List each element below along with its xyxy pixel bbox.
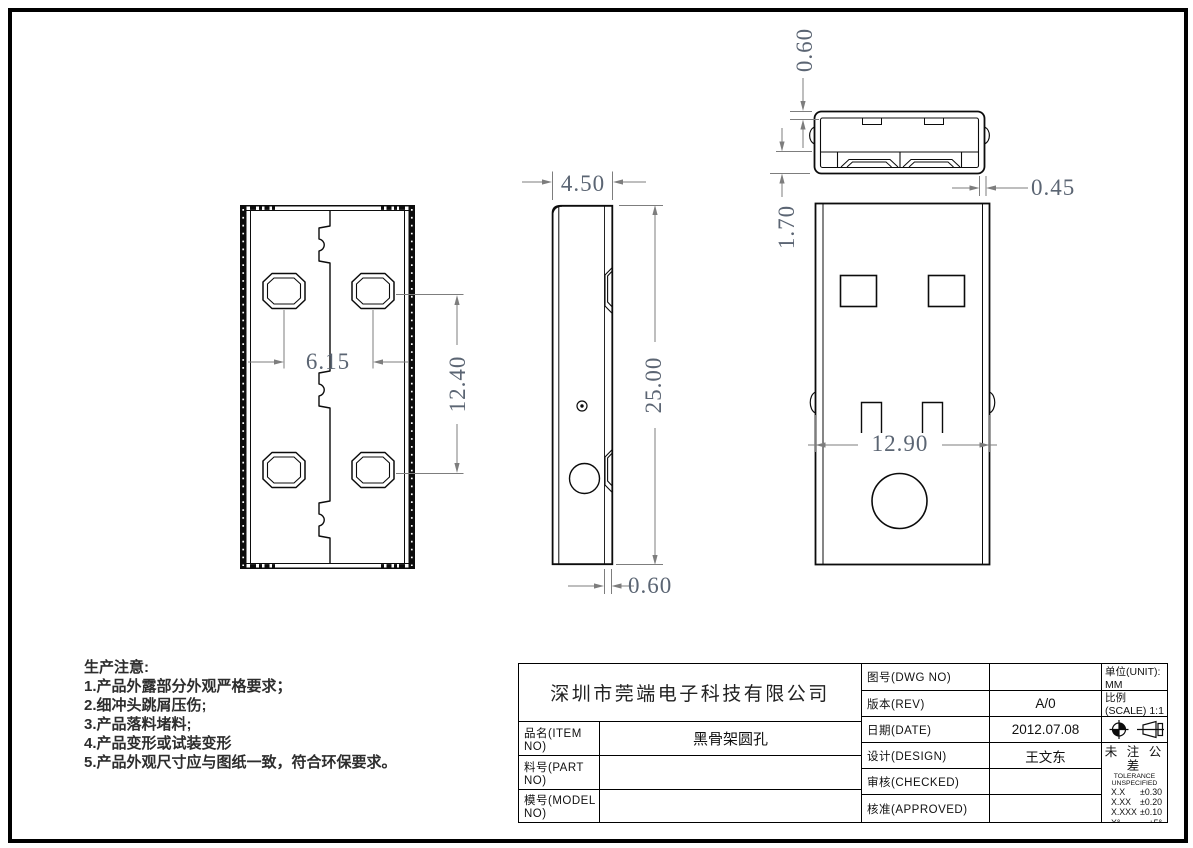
dwg-no-value — [989, 664, 1101, 690]
side-hole — [570, 464, 600, 494]
notes-title: 生产注意: — [84, 658, 397, 677]
item-no-value: 黑骨架圆孔 — [599, 721, 861, 755]
bottom-view — [240, 205, 415, 569]
hole-top-left — [263, 274, 305, 309]
corner-knurl-marks — [250, 206, 405, 567]
front-outline — [816, 204, 990, 565]
latch-tab-upper — [605, 268, 612, 313]
scale-label: 比例(SCALE) 1:1 — [1101, 690, 1167, 716]
note-line: 1.产品外露部分外观严格要求； — [84, 677, 397, 696]
dim-text-bottom-wall: 0.60 — [628, 574, 672, 598]
dimple-center — [580, 404, 583, 407]
part-no-value — [599, 755, 861, 789]
note-line: 4.产品变形或试装变形 — [84, 734, 397, 753]
tolerance-row: X.XXX±0.10 — [1102, 807, 1167, 817]
tolerance-row: X.XX±0.20 — [1102, 797, 1167, 807]
dim-side-wall — [952, 176, 1028, 196]
part-no-label: 料号(PART NO) — [519, 755, 599, 789]
item-no-label: 品名(ITEM NO) — [519, 721, 599, 755]
hole-bottom-right — [352, 453, 394, 488]
seam-line — [319, 210, 330, 564]
tolerance-box: 未 注 公 差 TOLERANCE UNSPECIFIED X.X±0.30 X… — [1101, 742, 1167, 822]
dimension-lines — [248, 78, 1028, 594]
end-notch-left — [863, 118, 882, 125]
tolerance-row: X.X±0.30 — [1102, 787, 1167, 797]
projection-symbols-cell — [1101, 716, 1167, 742]
note-line: 3.产品落料堵料; — [84, 715, 397, 734]
dim-bottom-wall — [568, 569, 634, 594]
window-left — [841, 276, 877, 307]
dim-text-hole-pitch-y: 12.40 — [446, 339, 470, 429]
third-angle-projection-icon — [1137, 722, 1164, 738]
dwg-no-label: 图号(DWG NO) — [861, 664, 989, 690]
latch-tab-lower — [605, 450, 612, 492]
hatched-band-right — [409, 205, 416, 569]
tolerance-subtitle: TOLERANCE UNSPECIFIED — [1102, 773, 1167, 787]
tolerance-title: 未 注 公 差 — [1102, 743, 1167, 773]
dim-text-side-wall: 0.45 — [1031, 176, 1075, 200]
end-view — [810, 112, 990, 174]
dim-text-top-wall: 0.60 — [793, 5, 817, 95]
note-line: 2.细冲头跳屑压伤; — [84, 696, 397, 715]
hole-bottom-left — [263, 453, 305, 488]
date-value: 2012.07.08 — [989, 716, 1101, 742]
note-line: 5.产品外观尺寸应与图纸一致，符合环保要求。 — [84, 753, 397, 772]
tolerance-row: X°±5° — [1102, 818, 1167, 822]
rev-value: A/0 — [989, 690, 1101, 716]
rev-label: 版本(REV) — [861, 690, 989, 716]
design-label: 设计(DESIGN) — [861, 742, 989, 768]
front-view — [810, 204, 995, 565]
dim-text-length: 25.00 — [642, 340, 666, 430]
checked-value — [989, 768, 1101, 794]
design-value: 王文东 — [989, 742, 1101, 768]
approved-value — [989, 794, 1101, 822]
end-contact-left — [841, 160, 898, 168]
hatched-band-left — [240, 205, 247, 569]
end-notch-right — [925, 118, 944, 125]
dim-text-width: 12.90 — [855, 432, 945, 456]
checked-label: 审核(CHECKED) — [861, 768, 989, 794]
drawing-sheet: 0.60 1.70 0.45 4.50 25.00 0.60 6.15 12.4… — [0, 0, 1193, 848]
slot-left — [862, 403, 882, 434]
side-outline — [553, 206, 613, 564]
datum-target-icon — [1110, 720, 1129, 739]
unit-label: 单位(UNIT): MM — [1101, 664, 1167, 690]
end-contact-right — [903, 160, 960, 168]
projection-symbols — [1102, 717, 1167, 742]
company-name: 深圳市莞端电子科技有限公司 — [519, 664, 861, 721]
hole-top-right — [352, 274, 394, 309]
front-hole — [872, 474, 927, 529]
dim-text-depth: 4.50 — [538, 172, 628, 196]
window-right — [929, 276, 965, 307]
date-label: 日期(DATE) — [861, 716, 989, 742]
side-view — [553, 206, 613, 564]
model-no-value — [599, 789, 861, 822]
approved-label: 核准(APPROVED) — [861, 794, 989, 822]
production-notes: 生产注意: 1.产品外露部分外观严格要求； 2.细冲头跳屑压伤; 3.产品落料堵… — [84, 658, 397, 772]
dim-text-lip: 1.70 — [775, 182, 799, 272]
title-block: 深圳市莞端电子科技有限公司 品名(ITEM NO) 黑骨架圆孔 料号(PART … — [518, 663, 1168, 823]
slot-right — [923, 403, 943, 434]
dim-text-hole-pitch-x: 6.15 — [283, 350, 373, 374]
model-no-label: 模号(MODEL NO) — [519, 789, 599, 822]
